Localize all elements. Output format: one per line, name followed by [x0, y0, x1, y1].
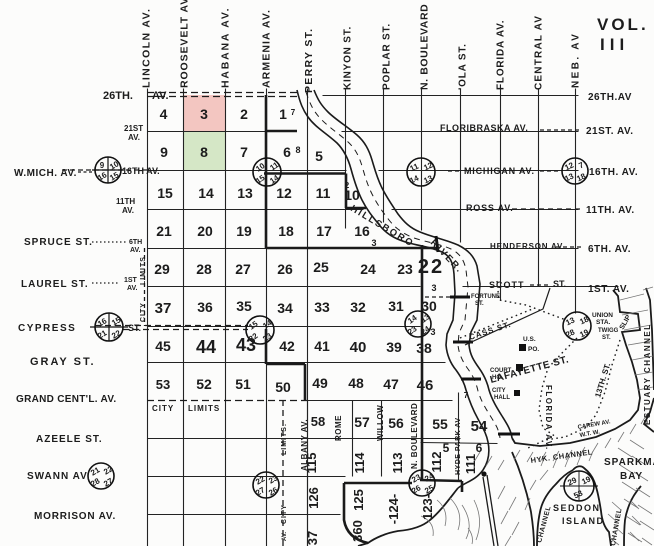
svg-text:ST.: ST.: [553, 279, 566, 289]
svg-text:39: 39: [386, 339, 402, 355]
svg-text:43: 43: [236, 335, 256, 355]
svg-text:9: 9: [100, 161, 105, 170]
svg-text:HALL: HALL: [494, 395, 510, 401]
svg-text:1ST. AV.: 1ST. AV.: [588, 284, 629, 295]
svg-text:VOL.: VOL.: [597, 15, 649, 34]
svg-text:53: 53: [156, 377, 170, 392]
svg-text:11TH: 11TH: [116, 197, 135, 206]
svg-text:111: 111: [463, 454, 478, 474]
svg-text:37: 37: [305, 531, 320, 545]
svg-text:29: 29: [154, 261, 170, 277]
svg-text:AV.: AV.: [282, 532, 288, 541]
svg-text:AV.: AV.: [122, 206, 134, 215]
svg-text:SEDDON: SEDDON: [553, 503, 601, 513]
svg-text:112: 112: [429, 452, 444, 473]
svg-text:7: 7: [291, 108, 296, 117]
svg-text:AV.: AV.: [128, 133, 140, 142]
svg-text:19: 19: [236, 223, 252, 239]
svg-text:126: 126: [306, 487, 321, 509]
svg-text:CYPRESS: CYPRESS: [18, 323, 76, 334]
svg-text:51: 51: [235, 376, 251, 392]
svg-text:32: 32: [350, 299, 366, 315]
svg-text:21ST: 21ST: [124, 124, 143, 133]
svg-text:45: 45: [155, 338, 171, 354]
svg-text:7: 7: [240, 144, 248, 160]
svg-text:47: 47: [383, 376, 399, 392]
svg-text:CITY: CITY: [281, 504, 288, 524]
svg-text:22: 22: [418, 256, 444, 278]
svg-text:35: 35: [236, 298, 252, 314]
svg-text:16: 16: [354, 223, 370, 239]
svg-text:2: 2: [345, 181, 350, 190]
svg-text:21: 21: [156, 223, 172, 239]
svg-text:3: 3: [430, 327, 435, 337]
svg-text:PERRY ST.: PERRY ST.: [303, 28, 315, 93]
svg-text:UNION: UNION: [592, 312, 613, 319]
svg-text:ESTUARY CHANNEL: ESTUARY CHANNEL: [643, 323, 652, 425]
svg-text:GRAND CENT'L. AV.: GRAND CENT'L. AV.: [16, 394, 116, 405]
svg-text:ST.: ST.: [475, 301, 484, 307]
svg-text:27: 27: [235, 261, 251, 277]
svg-text:N. BOULEVARD: N. BOULEVARD: [419, 4, 431, 90]
svg-text:50: 50: [275, 379, 291, 395]
svg-text:26TH.AV: 26TH.AV: [588, 92, 632, 103]
svg-text:17: 17: [316, 223, 332, 239]
svg-text:POPLAR ST.: POPLAR ST.: [382, 23, 393, 90]
svg-text:AZEELE ST.: AZEELE ST.: [36, 434, 103, 445]
svg-text:6: 6: [283, 144, 291, 160]
svg-text:NEB. AV: NEB. AV: [571, 32, 582, 88]
svg-text:113: 113: [390, 453, 405, 474]
svg-text:ST.: ST.: [128, 323, 141, 333]
svg-text:57: 57: [354, 414, 370, 430]
svg-text:STA.: STA.: [596, 319, 611, 326]
svg-text:5: 5: [315, 148, 323, 164]
svg-text:FORTUNE: FORTUNE: [471, 294, 500, 300]
svg-text:SCOTT: SCOTT: [489, 280, 525, 290]
svg-text:FLORIBRASKA AV.: FLORIBRASKA AV.: [440, 123, 528, 133]
svg-text:PO.: PO.: [528, 346, 539, 353]
svg-text:ROME: ROME: [334, 415, 343, 441]
svg-text:30: 30: [421, 298, 437, 314]
svg-text:31: 31: [388, 298, 404, 314]
svg-text:ARMENIA AV.: ARMENIA AV.: [261, 9, 273, 88]
svg-text:6TH: 6TH: [129, 239, 142, 246]
svg-text:34: 34: [277, 300, 293, 316]
svg-text:360: 360: [350, 520, 365, 542]
svg-text:9: 9: [160, 144, 168, 160]
svg-text:ROSS AV.: ROSS AV.: [466, 203, 514, 213]
svg-text:'OLA ST.: 'OLA ST.: [458, 43, 469, 90]
svg-text:114: 114: [352, 452, 367, 474]
svg-text:52: 52: [196, 376, 212, 392]
svg-text:ST.: ST.: [602, 335, 611, 341]
svg-text:BAY: BAY: [620, 471, 643, 482]
svg-text:2: 2: [240, 106, 248, 122]
svg-text:LIMITS: LIMITS: [140, 256, 147, 285]
svg-text:125: 125: [351, 489, 366, 511]
svg-text:8: 8: [295, 145, 300, 155]
svg-text:KINYON ST.: KINYON ST.: [343, 26, 354, 90]
svg-text:ALBANY AV.: ALBANY AV.: [300, 419, 309, 471]
svg-text:16TH AV.: 16TH AV.: [122, 166, 160, 176]
svg-text:21ST. AV.: 21ST. AV.: [586, 126, 634, 137]
svg-text:49: 49: [312, 375, 328, 391]
svg-text:54: 54: [471, 418, 488, 435]
svg-text:CITY: CITY: [140, 302, 147, 322]
svg-text:FLORIDA AV.: FLORIDA AV.: [544, 385, 553, 451]
svg-text:11: 11: [316, 185, 331, 201]
svg-text:HABANA AV.: HABANA AV.: [220, 7, 232, 88]
svg-text:7: 7: [464, 391, 469, 400]
svg-text:38: 38: [416, 340, 432, 356]
svg-text:41: 41: [314, 338, 330, 354]
svg-text:MICHIGAN AV.: MICHIGAN AV.: [464, 166, 535, 176]
svg-text:3: 3: [200, 106, 208, 122]
svg-text:13: 13: [237, 185, 253, 201]
svg-text:6: 6: [476, 441, 483, 455]
svg-text:12: 12: [276, 185, 292, 201]
svg-text:48: 48: [348, 375, 364, 391]
svg-text:CITY: CITY: [492, 388, 506, 394]
svg-text:3: 3: [371, 238, 376, 248]
svg-text:8: 8: [200, 144, 208, 160]
svg-text:4: 4: [160, 106, 169, 122]
svg-text:28: 28: [196, 261, 212, 277]
svg-text:CITY: CITY: [152, 404, 174, 413]
svg-text:SPRUCE ST.: SPRUCE ST.: [24, 237, 93, 248]
svg-text:N. BOULEVARD: N. BOULEVARD: [410, 403, 419, 469]
svg-text:23: 23: [397, 261, 413, 277]
svg-text:58: 58: [311, 414, 325, 429]
svg-text:25: 25: [313, 259, 329, 275]
svg-text:AV.: AV.: [130, 247, 141, 254]
svg-text:MORRISON AV.: MORRISON AV.: [34, 511, 116, 522]
svg-text:44: 44: [196, 337, 216, 357]
svg-text:AV.: AV.: [127, 285, 138, 292]
svg-text:U.S.: U.S.: [523, 336, 536, 343]
svg-text:LINCOLN AV.: LINCOLN AV.: [141, 8, 153, 88]
svg-text:HENDERSON AV: HENDERSON AV: [490, 242, 563, 251]
svg-text:37: 37: [155, 300, 172, 317]
svg-text:ISLAND: ISLAND: [562, 516, 605, 526]
svg-text:HYDE PARK AV: HYDE PARK AV: [455, 417, 462, 475]
svg-text:GRAY ST.: GRAY ST.: [30, 356, 96, 368]
svg-text:26TH.: 26TH.: [103, 90, 133, 102]
svg-text:55: 55: [432, 416, 448, 432]
svg-text:56: 56: [388, 415, 404, 431]
svg-text:CENTRAL AV: CENTRAL AV: [534, 15, 545, 90]
svg-text:TWIGG: TWIGG: [598, 328, 619, 334]
svg-text:46: 46: [417, 377, 434, 394]
svg-text:42: 42: [279, 338, 295, 354]
svg-text:15: 15: [157, 185, 173, 201]
svg-text:18: 18: [278, 223, 294, 239]
svg-text:AV.: AV.: [152, 90, 169, 102]
svg-text:SWANN AV.: SWANN AV.: [27, 471, 91, 482]
svg-text:16TH. AV.: 16TH. AV.: [589, 167, 638, 178]
svg-text:14: 14: [198, 185, 214, 201]
svg-text:36: 36: [197, 299, 213, 315]
svg-text:11TH. AV.: 11TH. AV.: [586, 205, 635, 216]
svg-text:26: 26: [277, 261, 293, 277]
svg-text:33: 33: [314, 299, 330, 315]
svg-text:LIMITS.: LIMITS.: [281, 423, 288, 455]
svg-text:40: 40: [350, 339, 367, 356]
svg-text:ROOSEVELT AV: ROOSEVELT AV: [179, 0, 191, 88]
svg-text:SPARKMAN: SPARKMAN: [604, 457, 654, 468]
svg-text:1: 1: [279, 106, 287, 122]
svg-text:LAUREL ST.: LAUREL ST.: [21, 279, 89, 290]
svg-text:W.MICH. AV.: W.MICH. AV.: [14, 168, 77, 179]
svg-text:-124-: -124-: [386, 494, 401, 524]
svg-text:1ST: 1ST: [124, 277, 138, 284]
svg-text:III: III: [600, 35, 629, 54]
svg-text:24: 24: [360, 261, 376, 277]
svg-text:3: 3: [431, 283, 436, 293]
svg-text:FLORIDA AV.: FLORIDA AV.: [496, 20, 507, 90]
svg-text:123-: 123-: [420, 494, 435, 520]
svg-text:20: 20: [197, 223, 213, 239]
svg-text:WILLOW: WILLOW: [376, 405, 385, 441]
svg-text:LIMITS: LIMITS: [188, 404, 220, 413]
svg-text:6TH. AV.: 6TH. AV.: [588, 244, 631, 255]
